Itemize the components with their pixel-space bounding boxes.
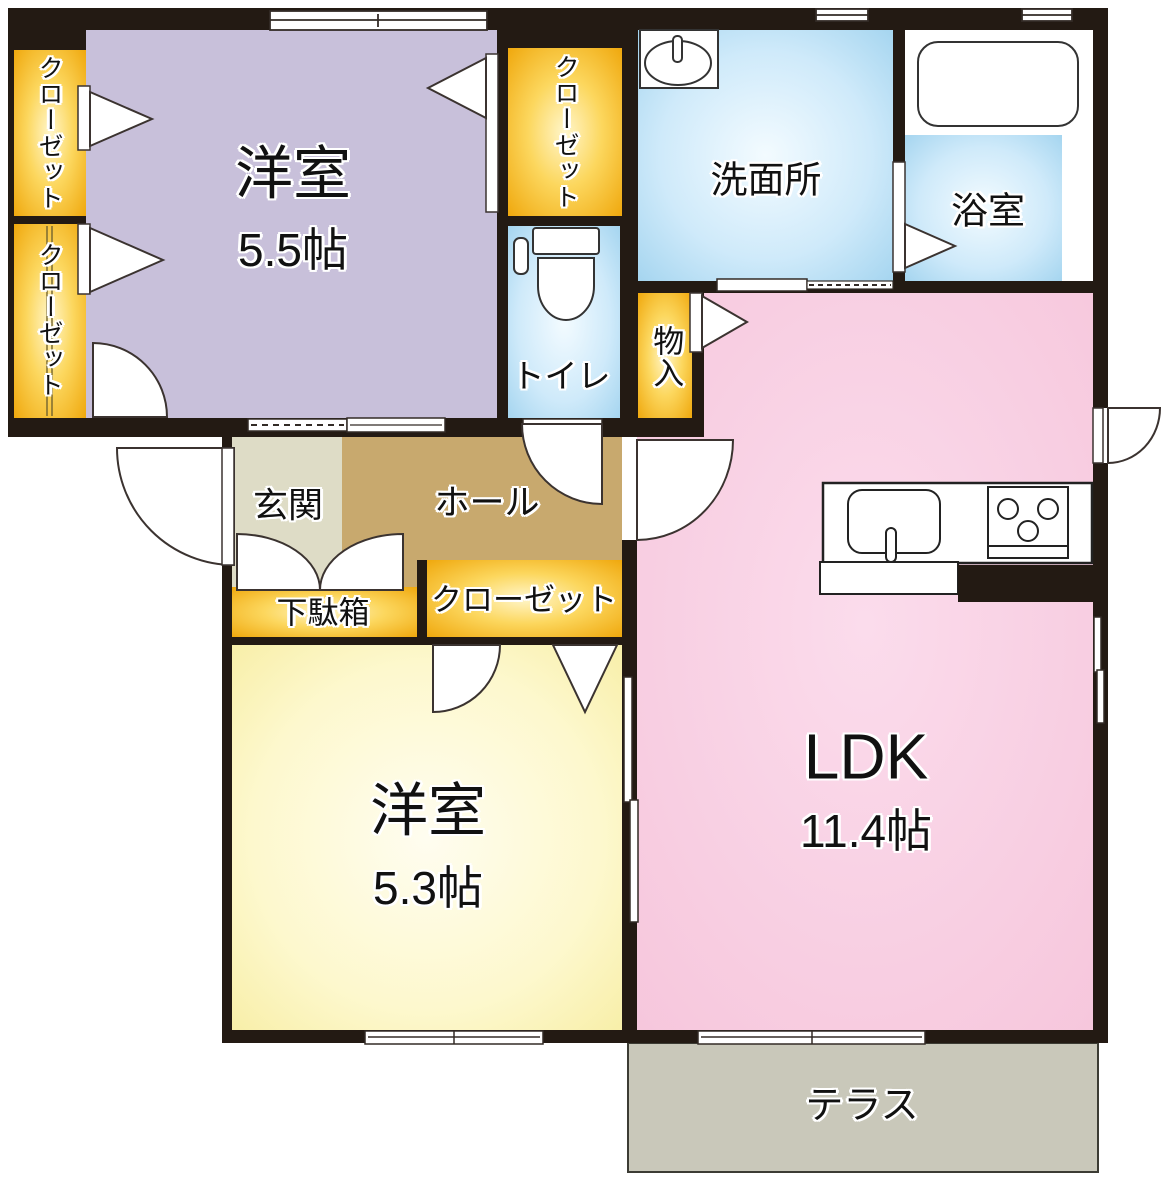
entrance-label: 玄関 — [253, 489, 323, 526]
window-washroom-top — [816, 9, 868, 21]
sink-icon — [640, 30, 718, 88]
storage-label: 物入 — [649, 325, 682, 389]
window-bedroom2-bottom — [365, 1031, 543, 1044]
kitchen-counter — [820, 483, 1093, 602]
toilet-label: トイレ — [512, 360, 611, 395]
room-ldk — [637, 293, 1093, 1030]
window-bedroom1-top — [270, 11, 487, 30]
floor-plan: 洋室 5.5帖 洗面所 浴室 トイレ クローゼット クローゼット クローゼット … — [0, 0, 1162, 1181]
closet-left-lower-label: クローゼット — [36, 242, 62, 398]
kitchen-faucet-icon — [886, 528, 896, 562]
window-bathroom-top — [1022, 9, 1072, 21]
bedroom1-label: 洋室 — [235, 145, 351, 206]
bedroom1-sliding-door — [248, 418, 445, 432]
bedroom1-size: 5.5帖 — [238, 226, 348, 274]
window-ldk-terrace — [698, 1031, 925, 1044]
bedroom2-size: 5.3帖 — [373, 864, 483, 912]
shoe-cabinet-label: 下駄箱 — [277, 598, 370, 631]
entrance-door — [117, 448, 234, 565]
closet-hall-label: クローゼット — [431, 585, 617, 618]
closet-left-upper-label: クローゼット — [36, 55, 62, 211]
ldk-label: LDK — [804, 723, 929, 790]
closet-bedroom1-label: クローゼット — [552, 54, 578, 210]
bathtub-icon — [918, 42, 1078, 126]
washroom-sliding-door — [717, 279, 893, 291]
stove-icon — [988, 487, 1068, 558]
ldk-size: 11.4帖 — [800, 807, 932, 855]
bedroom2-label: 洋室 — [370, 782, 486, 843]
kitchen-lower-counter — [820, 562, 958, 594]
washroom-label: 洗面所 — [711, 162, 822, 201]
ldk-right-door — [1093, 408, 1160, 463]
kitchen-partition-wall — [958, 565, 1093, 602]
bathroom-label: 浴室 — [951, 193, 1025, 232]
hall-label: ホール — [434, 486, 539, 523]
terrace-label: テラス — [805, 1087, 918, 1127]
